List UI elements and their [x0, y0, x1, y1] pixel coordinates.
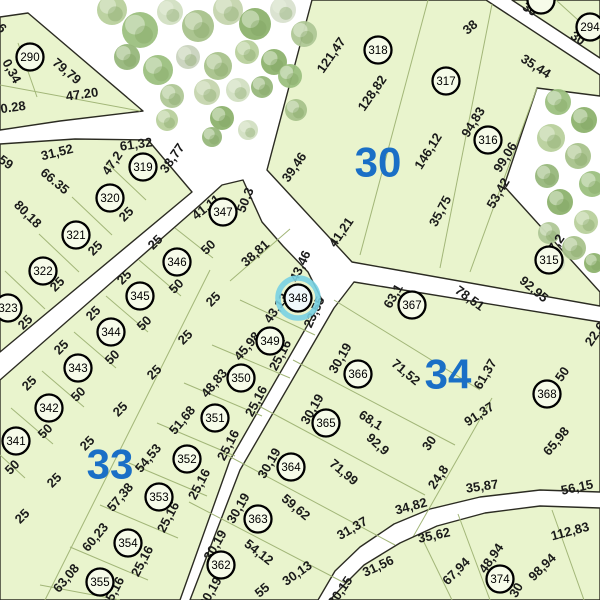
tree-icon: [185, 54, 197, 66]
parcel-number: 320: [100, 193, 119, 205]
tree-icon: [300, 31, 313, 44]
parcel-number: 290: [20, 52, 39, 64]
tree-icon: [235, 87, 247, 99]
tree-icon: [219, 115, 231, 127]
parcel-number: 323: [0, 303, 18, 315]
tree-icon: [556, 199, 569, 212]
parcel-number: 342: [39, 403, 58, 415]
parcel-number: 353: [149, 492, 168, 504]
tree-icon: [108, 6, 123, 21]
parcel-marker-319[interactable]: 319: [130, 154, 157, 181]
parcel-number: 344: [101, 327, 121, 339]
tree-icon: [214, 63, 228, 77]
tree-icon: [547, 135, 561, 149]
parcel-number: 365: [316, 418, 335, 430]
parcel-marker-343[interactable]: 343: [65, 355, 92, 382]
parcel-number: 374: [490, 574, 510, 586]
parcel-marker-294[interactable]: 294: [577, 14, 600, 41]
parcel-number: 347: [213, 207, 232, 219]
parcel-number: 355: [90, 577, 109, 589]
parcel-marker-365[interactable]: 365: [313, 410, 340, 437]
parcel-number: 351: [205, 413, 224, 425]
tree-icon: [583, 219, 595, 231]
tree-icon: [203, 89, 216, 102]
tree-icon: [244, 49, 256, 61]
parcel-marker-320[interactable]: 320: [97, 185, 124, 212]
tree-icon: [209, 135, 219, 145]
parcel-number: 343: [68, 363, 87, 375]
tree-icon: [166, 9, 179, 22]
parcel-marker-349[interactable]: 349: [257, 328, 284, 355]
parcel-number: 367: [402, 300, 421, 312]
tree-icon: [245, 128, 255, 138]
tree-icon: [544, 173, 556, 185]
tree-icon: [164, 117, 175, 128]
parcel-number: 364: [281, 462, 301, 474]
tree-icon: [194, 22, 210, 38]
parcel-number: 354: [118, 538, 138, 550]
parcel-marker-354[interactable]: 354: [115, 530, 142, 557]
parcel-number: 322: [33, 266, 52, 278]
parcel-marker-316[interactable]: 316: [475, 127, 502, 154]
parcel-marker-351[interactable]: 351: [202, 405, 229, 432]
parcel-number: 350: [231, 373, 250, 385]
map-viewport[interactable]: 60,3479,7947.200.2831,5261,3247,238,7766…: [0, 0, 600, 600]
block-number-33: 33: [87, 441, 134, 488]
tree-icon: [123, 54, 136, 67]
parcel-marker-352[interactable]: 352: [174, 446, 201, 473]
parcel-number: 349: [260, 336, 279, 348]
parcel-number: 348: [288, 293, 307, 305]
tree-icon: [287, 73, 299, 85]
parcel-marker-321[interactable]: 321: [63, 222, 90, 249]
parcel-marker-315[interactable]: 315: [536, 247, 563, 274]
parcel-marker-341[interactable]: 341: [3, 428, 30, 455]
parcel-marker-318[interactable]: 318: [365, 37, 392, 64]
cadastral-map[interactable]: 60,3479,7947.200.2831,5261,3247,238,7766…: [0, 0, 600, 600]
parcel-marker-353[interactable]: 353: [146, 484, 173, 511]
parcel-marker-348[interactable]: 348: [278, 278, 318, 318]
parcel-number: 294: [580, 22, 600, 34]
parcel-marker-350[interactable]: 350: [228, 365, 255, 392]
parcel-marker-347[interactable]: 347: [210, 199, 237, 226]
block-number-30: 30: [355, 139, 402, 186]
parcel-marker-368[interactable]: 368: [534, 381, 561, 408]
tree-icon: [251, 20, 267, 36]
parcel-number: 346: [167, 257, 186, 269]
parcel-marker-323[interactable]: 323: [0, 295, 22, 322]
tree-icon: [169, 93, 181, 105]
parcel-marker-345[interactable]: 345: [127, 283, 154, 310]
parcel-marker-374[interactable]: 374: [487, 566, 514, 593]
parcel-marker-366[interactable]: 366: [345, 361, 372, 388]
parcel-number: 362: [211, 560, 230, 572]
tree-icon: [259, 84, 270, 95]
parcel-number: 321: [66, 230, 85, 242]
parcel-number: 352: [177, 454, 196, 466]
parcel-number: 318: [368, 45, 387, 57]
tree-icon: [154, 66, 169, 81]
parcel-number: 317: [436, 76, 455, 88]
parcel-marker-367[interactable]: 367: [399, 292, 426, 319]
parcel-marker-362[interactable]: 362: [208, 552, 235, 579]
parcel-marker-322[interactable]: 322: [30, 258, 57, 285]
parcel-number: 319: [133, 162, 152, 174]
parcel-number: 341: [6, 436, 25, 448]
parcel-marker-290[interactable]: 290: [17, 44, 44, 71]
parcel-marker-342[interactable]: 342: [36, 395, 63, 422]
parcel-number: 368: [537, 389, 556, 401]
tree-icon: [580, 117, 593, 130]
parcel-number: 366: [348, 369, 367, 381]
parcel-marker-363[interactable]: 363: [245, 506, 272, 533]
tree-icon: [293, 107, 304, 118]
parcel-number: 345: [130, 291, 149, 303]
parcel-marker-355[interactable]: 355: [87, 569, 114, 596]
parcel-number: 363: [248, 514, 267, 526]
tree-icon: [279, 7, 292, 20]
tree-icon: [224, 6, 239, 21]
tree-icon: [571, 245, 583, 257]
parcel-number: 315: [539, 255, 558, 267]
tree-icon: [554, 99, 567, 112]
tree-icon: [135, 26, 153, 44]
block-number-34: 34: [425, 351, 472, 398]
parcel-marker-317[interactable]: 317: [433, 68, 460, 95]
tree-icon: [574, 153, 587, 166]
parcel-number: 316: [478, 135, 497, 147]
parcel-marker-364[interactable]: 364: [278, 454, 305, 481]
parcel-marker-346[interactable]: 346: [164, 249, 191, 276]
parcel-marker-344[interactable]: 344: [98, 319, 125, 346]
